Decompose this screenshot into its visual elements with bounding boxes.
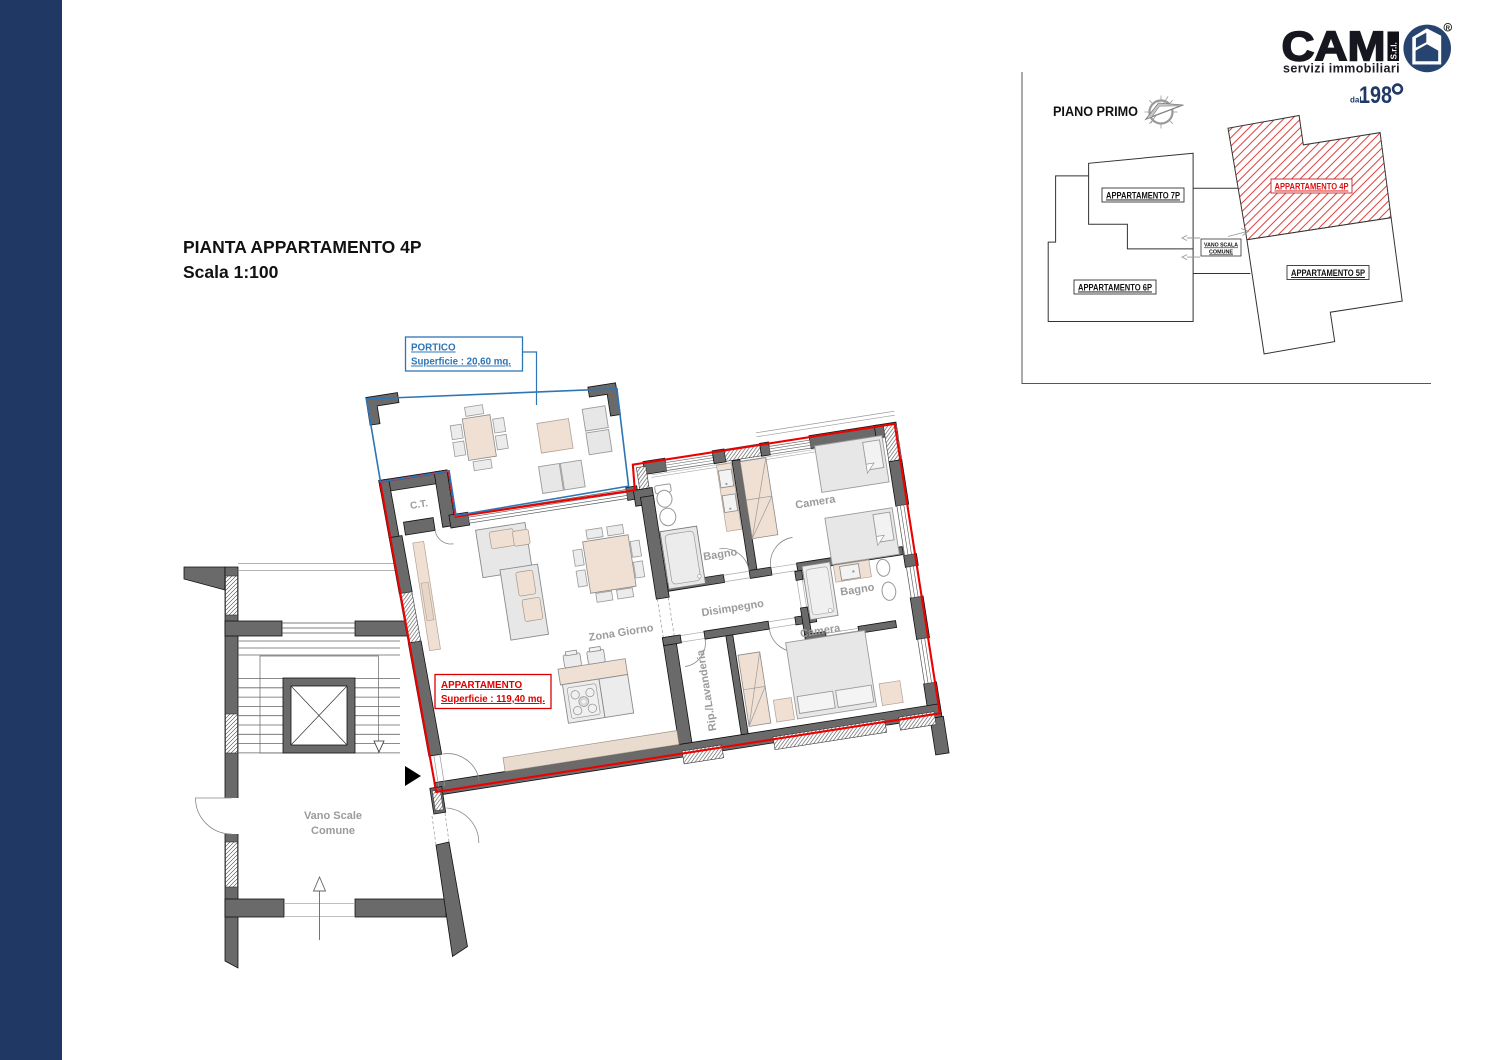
svg-text:APPARTAMENTO 5P: APPARTAMENTO 5P [1291, 268, 1365, 278]
svg-text:S.r.l.: S.r.l. [1390, 42, 1399, 59]
svg-text:APPARTAMENTO 6P: APPARTAMENTO 6P [1078, 283, 1152, 293]
svg-text:PIANO PRIMO: PIANO PRIMO [1053, 104, 1138, 119]
svg-text:PIANTA APPARTAMENTO 4P: PIANTA APPARTAMENTO 4P [183, 237, 422, 257]
svg-text:VANO SCALA: VANO SCALA [1204, 243, 1239, 249]
svg-text:APPARTAMENTO: APPARTAMENTO [441, 680, 522, 691]
svg-text:COMUNE: COMUNE [1209, 250, 1233, 256]
svg-text:APPARTAMENTO 4P: APPARTAMENTO 4P [1275, 182, 1349, 192]
svg-text:Superficie : 20,60 mq.: Superficie : 20,60 mq. [411, 357, 511, 368]
svg-text:APPARTAMENTO 7P: APPARTAMENTO 7P [1106, 191, 1180, 201]
svg-text:Superficie : 119,40 mq.: Superficie : 119,40 mq. [441, 694, 545, 705]
svg-text:Scala 1:100: Scala 1:100 [183, 262, 279, 282]
svg-text:Vano Scale: Vano Scale [304, 810, 362, 822]
svg-text:servizi immobiliari: servizi immobiliari [1283, 61, 1400, 76]
svg-text:R: R [1446, 25, 1451, 32]
svg-text:Comune: Comune [311, 825, 355, 837]
svg-text:198: 198 [1359, 82, 1392, 109]
svg-text:PORTICO: PORTICO [411, 343, 456, 354]
